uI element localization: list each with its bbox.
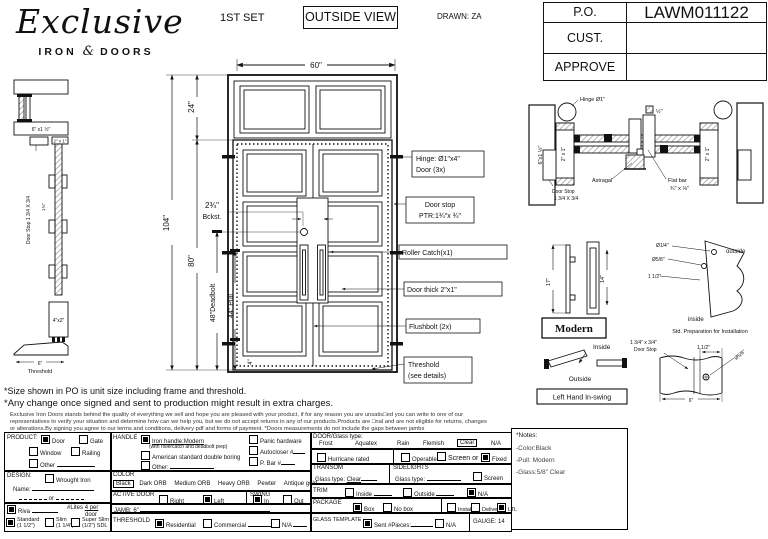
cust-label: CUST. <box>544 23 627 54</box>
divider <box>469 513 470 531</box>
notes-title: *Notes: <box>516 432 537 439</box>
checkbox-railing[interactable] <box>71 447 80 456</box>
trim-outside-blank[interactable] <box>436 489 454 496</box>
checkbox-screen[interactable] <box>473 472 482 481</box>
prep-dim-quarter: Ø1/4" <box>656 243 669 249</box>
handle-detail: 17" 14" Modern <box>542 242 607 338</box>
trim-label: TRIM <box>313 488 328 494</box>
plan-half-dim: ½" <box>656 108 663 115</box>
threshold-commercial[interactable]: Commercial <box>203 519 272 529</box>
active-door-label: ACTIVE DOOR <box>113 492 154 498</box>
option-label: Panic hardware <box>260 439 302 445</box>
checkbox-gate[interactable] <box>79 435 88 444</box>
cust-row: CUST. <box>544 22 766 54</box>
riva-blank[interactable] <box>32 506 58 513</box>
jamb-top-label: 6" x1 ½" <box>32 126 51 133</box>
divider <box>441 498 442 513</box>
checkbox-install[interactable] <box>447 503 456 512</box>
checkbox-commercial[interactable] <box>203 519 212 528</box>
thickness-slim[interactable]: Slim(1 1/4") <box>45 518 74 529</box>
option-label: Riva <box>18 509 30 515</box>
sidelights-blank[interactable] <box>427 474 461 481</box>
handle-dim-14: 14" <box>600 275 606 283</box>
stopdetail-dim1: 1 1/2" <box>697 345 710 351</box>
po-number: LAWM011122 <box>627 3 766 22</box>
transom-blank[interactable] <box>361 474 377 481</box>
option-size: (1/2") SDL <box>82 523 108 529</box>
operable-option[interactable]: Operable <box>401 453 437 463</box>
stopdetail-label: Door Stop <box>634 347 657 353</box>
package-label: PACKAGE <box>313 500 342 506</box>
po-label: P.O. <box>544 3 627 22</box>
dim-deadbolt: 48"Deadbolt <box>210 284 217 322</box>
jamb-threshold-label: Threshold <box>28 369 52 375</box>
callout-flushbolt: Flushbolt (2x) <box>409 324 451 331</box>
swing-inside-label: Inside <box>593 344 611 351</box>
handle-option-autocloser[interactable]: Autocloser # <box>249 446 305 456</box>
stopdetail-dim3: 6" <box>689 398 694 404</box>
checkbox-iron-handle[interactable] <box>141 435 150 444</box>
checkbox-trim-inside[interactable] <box>345 488 354 497</box>
glass-type-na[interactable]: N/A <box>491 441 501 447</box>
handle-option-pbar[interactable]: P. Bar # <box>249 457 295 467</box>
form-transom-sidelights-section: TRANSOM Glass type: Clear SIDELIGHTS Gla… <box>310 463 512 485</box>
callout-doorstop-2: PTR:1¾"x ¾" <box>419 213 461 220</box>
divider <box>389 464 390 484</box>
callout-door-thick: Door thick 2"x1" <box>407 287 457 294</box>
jamb-bar-label: 2" x 1" <box>54 139 67 144</box>
cust-value[interactable] <box>627 23 766 54</box>
glass-template-label: GLASS TEMPLATE <box>313 517 361 523</box>
form-glass-template-section: GLASS TEMPLATE Sent #Pieces: N/A GAUGE: … <box>310 512 512 532</box>
checkbox-screen-or[interactable] <box>437 452 446 461</box>
checkbox-other[interactable] <box>29 459 38 468</box>
sidelights-screen-option[interactable]: Screen <box>473 472 503 482</box>
transom-glass-field: Glass type: Clear <box>315 474 377 483</box>
checkbox-ltl[interactable] <box>497 503 506 512</box>
technical-drawing: 60" 104" 24" 80" 48"Deadbolt 44" Pull 2¾… <box>0 55 768 430</box>
design-name-field[interactable]: Name: <box>13 484 94 493</box>
prep-caption: Std. Preparation for Installation <box>672 329 748 335</box>
commercial-blank[interactable] <box>248 520 272 527</box>
template-na[interactable]: N/A <box>435 519 456 529</box>
handle-sub-label: (with rollercatch and deadbolt prep) <box>149 444 227 450</box>
callout-hinge: Hinge: Ø1"x4" <box>416 156 460 163</box>
plan-hinge-label: Hinge Ø1" <box>580 97 605 103</box>
form-handle-section: HANDLE Iron handle:Modern (with rollerca… <box>110 432 312 472</box>
callout-threshold: Threshold <box>408 362 439 369</box>
checkbox-fixed[interactable] <box>481 453 490 462</box>
prep-outside-label: outside <box>726 249 746 255</box>
plan-astragal-label: Astragal <box>592 178 612 184</box>
option-label: Autocloser # <box>260 450 293 456</box>
form-threshold-section: THRESHOLD Residential Commercial N/A <box>110 512 312 532</box>
glass-type-rain[interactable]: Rain <box>397 441 409 447</box>
checkbox-trim-outside[interactable] <box>403 488 412 497</box>
callout-threshold-2: (see details) <box>408 373 446 380</box>
checkbox-na[interactable] <box>271 519 280 528</box>
option-label: P. Bar # <box>260 461 281 467</box>
glass-label: DOOR/Glass type: <box>313 434 363 440</box>
prep-inside-label: inside <box>688 317 704 323</box>
dim-pull: 44" Pull <box>228 294 235 318</box>
plan-doorstop-label: Door Stop <box>552 189 575 195</box>
hurricane-option[interactable]: Hurricane rated <box>317 453 369 463</box>
dim-backset-label: Bckst. <box>202 214 221 221</box>
option-label: Other <box>40 463 55 469</box>
checkbox-super-slim[interactable] <box>71 518 80 527</box>
option-label: N/A <box>282 523 292 529</box>
checkbox-residential[interactable] <box>155 519 164 528</box>
checkbox-panic[interactable] <box>249 435 258 444</box>
checkbox-wrought-iron[interactable] <box>45 474 54 483</box>
plan-flatbar-size: ¾" x ⅛" <box>670 186 689 192</box>
jamb-vertical-section: 6" x1 ½" 2" x 1" Door Stop 1 3/4 X 3/4 1… <box>14 80 68 375</box>
callout-doorstop: Door stop <box>425 202 455 209</box>
jamb-block-label: 4"x2" <box>53 318 65 324</box>
divider <box>393 449 394 464</box>
swing-detail: Inside Outside Left Hand In-swing <box>537 344 627 404</box>
lites-value[interactable]: 4 per <box>85 505 99 511</box>
drawn-by-label: DRAWN: ZA <box>437 12 482 21</box>
design-option-wrought[interactable]: Wrought Iron <box>45 474 91 484</box>
trim-inside-blank[interactable] <box>374 489 392 496</box>
dim-bottom-rail: 4" <box>248 359 254 364</box>
handle-option-panic[interactable]: Panic hardware <box>249 435 302 445</box>
handle-option-american[interactable]: American standard double boring <box>141 451 240 461</box>
checkbox-hurricane[interactable] <box>317 453 326 462</box>
threshold-residential[interactable]: Residential <box>155 519 196 529</box>
option-label: Window <box>40 451 61 457</box>
dim-width: 60" <box>310 61 322 70</box>
checkbox-door[interactable] <box>41 435 50 444</box>
jamb-mid-dim: 1¾" <box>41 203 46 211</box>
thickness-standard[interactable]: Standard(1 1/2") <box>6 518 39 529</box>
callout-roller-catch: Roller Catch(x1) <box>402 250 453 257</box>
lites-label: #Lites <box>67 505 83 511</box>
form-color-section: COLOR Black Dark ORB Medium ORB Heavy OR… <box>110 470 312 492</box>
color-option[interactable]: Dark ORB <box>139 481 166 487</box>
option-label: N/A <box>446 523 456 529</box>
option-label: Screen or <box>448 455 478 462</box>
checkbox-window[interactable] <box>29 447 38 456</box>
checkbox-american-boring[interactable] <box>141 451 150 460</box>
view-label: OUTSIDE VIEW <box>303 6 398 29</box>
jamb-doorstop-label: Door Stop 1 3/4 X 3/4 <box>26 196 32 244</box>
swing-handedness-label: Left Hand In-swing <box>553 395 611 402</box>
gauge-value: GAUGE: 14 <box>473 519 505 525</box>
prep-dim-fiveeighth: Ø5/8" <box>652 257 665 263</box>
product-option-door[interactable]: Door <box>41 435 65 445</box>
fixed-option[interactable]: Fixed <box>481 453 507 463</box>
color-option[interactable]: Pewter <box>257 481 276 487</box>
handle-other-blank[interactable] <box>170 462 214 469</box>
form-design-section: DESIGN: Wrought Iron Name: or <box>4 470 112 504</box>
design-label: DESIGN: <box>7 473 32 479</box>
product-option-gate[interactable]: Gate <box>79 435 103 445</box>
design-or-divider: or <box>19 493 84 502</box>
style-option-riva[interactable]: Riva <box>7 505 58 515</box>
drawing-sheet: Exclusive IRON & DOORS 1ST SET OUTSIDE V… <box>0 0 768 539</box>
checkbox-autocloser[interactable] <box>249 446 258 455</box>
option-label: Gate <box>90 439 103 445</box>
prep-detail: Ø1/4" outside Ø5/8" 1 1/2" inside Std. P… <box>648 241 748 335</box>
color-option[interactable]: Medium ORB <box>174 481 210 487</box>
sidelights-label: SIDELIGHTS <box>393 465 429 471</box>
fine-print-2: representatives to verify your situation… <box>10 419 487 425</box>
glass-type-frost[interactable]: Frost <box>319 441 333 447</box>
product-option-window[interactable]: Window <box>29 447 61 457</box>
doorstop-detail: 1 3/4" x 3/4" Door Stop 1 1/2" Ø5/8" 6" <box>630 340 747 404</box>
disclaimer-changes: *Any change once signed and sent to prod… <box>4 398 333 409</box>
note-color: -Color:Black <box>516 445 551 452</box>
checkbox-template-na[interactable] <box>435 519 444 528</box>
form-style-section: Riva #Lites 4 per door Standard(1 1/2") … <box>4 502 112 532</box>
option-label: Sent #Pieces: <box>374 523 411 529</box>
dim-backset: 2¾" <box>205 201 219 210</box>
option-label: Commercial <box>214 523 246 529</box>
checkbox-box[interactable] <box>353 503 362 512</box>
plan-doorstop-size: 1 3/4 X 3/4 <box>554 196 578 202</box>
form-product-section: PRODUCT: Door Gate Window Railing Other <box>4 432 112 472</box>
option-size: (1 1/2") <box>17 523 35 529</box>
screen-or-option[interactable]: Screen or <box>437 452 478 462</box>
note-glass: -Glass:5/8" Clear <box>516 469 565 476</box>
plan-bar-right-label: 2" x 1" <box>705 147 711 162</box>
checkbox-slim[interactable] <box>45 518 54 527</box>
form-notes-section: *Notes: -Color:Black -Pull: Modern -Glas… <box>511 428 628 530</box>
elevation-callouts: Hinge: Ø1"x4" Door (3x) Door stop PTR:1¾… <box>314 151 507 383</box>
other-blank[interactable] <box>57 460 95 467</box>
handle-label: HANDLE <box>113 435 137 441</box>
glass-type-aquatex[interactable]: Aquatex <box>355 441 377 447</box>
dim-door-height: 80" <box>187 255 196 267</box>
plan-bar-left-label: 2" x 1" <box>561 147 567 162</box>
checkbox-sent[interactable] <box>363 519 372 528</box>
disclaimer-size: *Size shown in PO is unit size including… <box>4 386 246 396</box>
checkbox-handle-other[interactable] <box>141 461 150 470</box>
product-label: PRODUCT: <box>7 435 38 441</box>
checkbox-delivery[interactable] <box>471 503 480 512</box>
checkbox-operable[interactable] <box>401 453 410 462</box>
po-row: P.O. LAWM011122 <box>544 3 766 22</box>
door-elevation: 60" <box>222 59 403 372</box>
stopdetail-dim2: Ø5/8" <box>733 349 747 362</box>
option-label: Screen <box>484 476 503 482</box>
option-label: Railing <box>82 451 100 457</box>
sidelights-glass-field: Glass type: <box>395 474 461 483</box>
pbar-blank[interactable] <box>281 458 295 465</box>
swing-outside-label: Outside <box>569 376 592 383</box>
template-sent[interactable]: Sent #Pieces: <box>363 519 433 529</box>
checkbox-pbar[interactable] <box>249 457 258 466</box>
product-option-railing[interactable]: Railing <box>71 447 100 457</box>
option-label: Residential <box>166 523 196 529</box>
logo-script: Exclusive <box>16 2 184 41</box>
lites-field: #Lites 4 per <box>67 505 98 511</box>
jamb-blank[interactable] <box>140 505 270 512</box>
checkbox-standard[interactable] <box>6 518 15 527</box>
fine-print-1: Exclusive Iron Doors stands behind the q… <box>10 412 463 418</box>
transom-label: TRANSOM <box>313 465 343 471</box>
product-option-other[interactable]: Other <box>29 459 95 469</box>
glass-type-selected[interactable]: Clear <box>457 439 477 447</box>
autocloser-blank[interactable] <box>293 447 305 454</box>
plan-section: Hinge Ø1" 6"x1 ½" 2" x 1" 2" x 1" Door S… <box>529 97 763 205</box>
prep-dim-oneandhalf: 1 1/2" <box>648 274 661 280</box>
handle-dim-17: 17" <box>546 278 552 286</box>
plan-left-jamb-label: 6"x1 ½" <box>537 146 544 165</box>
threshold-na[interactable]: N/A <box>271 519 307 529</box>
checkbox-riva[interactable] <box>7 505 16 514</box>
name-blank[interactable] <box>32 484 94 491</box>
callout-hinge-2: Door (3x) <box>416 167 445 174</box>
stopdetail-size: 1 3/4" x 3/4" <box>630 340 657 346</box>
color-option[interactable]: Heavy ORB <box>218 481 250 487</box>
checkbox-nobox[interactable] <box>383 503 392 512</box>
color-selected[interactable]: Black <box>113 480 134 488</box>
thickness-super-slim[interactable]: Super Slim(1/2") SDL <box>71 518 109 529</box>
dim-transom-height: 24" <box>187 101 196 113</box>
pieces-blank[interactable] <box>411 520 433 527</box>
note-pull: -Pull: Modern <box>516 457 555 464</box>
color-label: COLOR <box>113 472 134 478</box>
handle-style-label: Modern <box>555 323 593 335</box>
set-label: 1ST SET <box>220 12 264 24</box>
threshold-label: THRESHOLD <box>113 518 150 524</box>
na-blank[interactable] <box>293 520 307 527</box>
checkbox-trim-na[interactable] <box>467 488 476 497</box>
dim-total-height: 104" <box>162 215 171 231</box>
jamb-threshold-dim: 6" <box>38 361 43 367</box>
color-options: Black Dark ORB Medium ORB Heavy ORB Pewt… <box>113 481 317 487</box>
plan-flatbar-label: Flat bar <box>668 178 687 184</box>
glass-type-flemish[interactable]: Flemish <box>423 441 444 447</box>
option-label: Door <box>52 439 65 445</box>
